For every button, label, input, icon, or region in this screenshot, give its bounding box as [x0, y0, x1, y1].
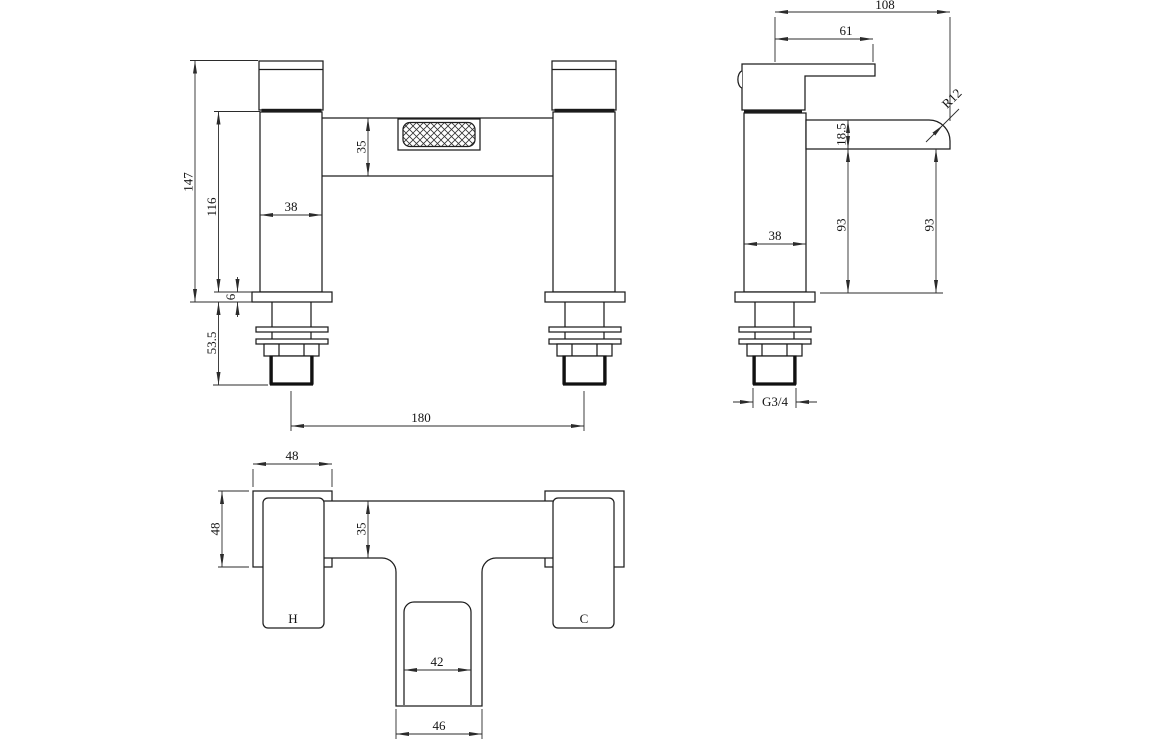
left-washer-2 [256, 339, 328, 344]
side-body [744, 113, 806, 292]
side-view: 108 61 18.5 93 93 38 G3/4 [733, 0, 965, 409]
dim-side-spout-to-deck: 93 [922, 219, 937, 232]
front-right-pillar [545, 61, 625, 384]
front-view: 147 116 38 35 6 53.5 180 [181, 61, 626, 432]
dim-front-bridge-height: 35 [354, 141, 369, 154]
right-nut [557, 344, 612, 356]
dim-plan-spout-inner-width: 42 [431, 654, 444, 669]
dim-plan-bridge-width: 35 [354, 523, 369, 536]
bath-filler-tap-drawing: 147 116 38 35 6 53.5 180 [0, 0, 1156, 742]
right-handle-gap [555, 109, 615, 112]
dim-side-handle-reach: 61 [840, 23, 853, 38]
side-thread [753, 356, 796, 384]
cold-indicator-label: C [580, 611, 589, 626]
dim-side-body-depth: 38 [769, 228, 782, 243]
plan-spout-outer [382, 558, 496, 706]
dim-front-total-height: 147 [181, 172, 196, 192]
plan-hot-handle [263, 498, 324, 628]
right-handle [552, 61, 616, 110]
right-washer-2 [549, 339, 621, 344]
dim-front-tap-centres: 180 [411, 410, 431, 425]
technical-drawing-page: 147 116 38 35 6 53.5 180 [0, 0, 1156, 742]
side-washer-2 [739, 339, 811, 344]
right-body [553, 112, 615, 292]
left-flange [252, 292, 332, 302]
dim-side-total-depth: 108 [875, 0, 895, 12]
left-washer-1 [256, 327, 328, 332]
right-flange [545, 292, 625, 302]
side-body-and-spout [735, 113, 950, 384]
side-washer-1 [739, 327, 811, 332]
left-handle-gap [262, 109, 322, 112]
side-flange [735, 292, 815, 302]
left-handle [259, 61, 323, 110]
dim-side-thread-size: G3/4 [762, 394, 789, 409]
front-dimensions: 147 116 38 35 6 53.5 180 [181, 61, 585, 432]
spout-profile [806, 120, 950, 149]
dim-side-spout-radius: R12 [939, 85, 965, 111]
dim-plan-handle-width: 48 [286, 448, 299, 463]
lever-front-bump [738, 71, 742, 88]
plan-cold-handle [553, 498, 614, 628]
dim-front-body-height: 116 [204, 197, 219, 217]
side-handle-lever [738, 64, 875, 113]
dim-front-flange-thickness: 6 [223, 293, 238, 300]
side-nut [747, 344, 802, 356]
plan-spout [382, 558, 496, 706]
plan-view: H C 48 48 35 42 46 [208, 448, 625, 739]
dim-front-pillar-width: 38 [285, 199, 298, 214]
side-handle-gap [744, 110, 802, 113]
dim-front-under-deck: 53.5 [204, 332, 219, 355]
left-nut [264, 344, 319, 356]
dim-side-spout-thickness: 18.5 [834, 123, 849, 146]
dim-plan-spout-outer-width: 46 [433, 718, 447, 733]
lever-profile [742, 64, 875, 110]
right-thread [563, 356, 606, 384]
hot-indicator-label: H [288, 611, 297, 626]
dim-side-body-to-deck: 93 [834, 219, 849, 232]
dim-plan-handle-depth: 48 [208, 523, 223, 536]
front-left-pillar [252, 61, 332, 384]
right-washer-1 [549, 327, 621, 332]
left-thread [270, 356, 313, 384]
diverter-button [403, 123, 475, 147]
